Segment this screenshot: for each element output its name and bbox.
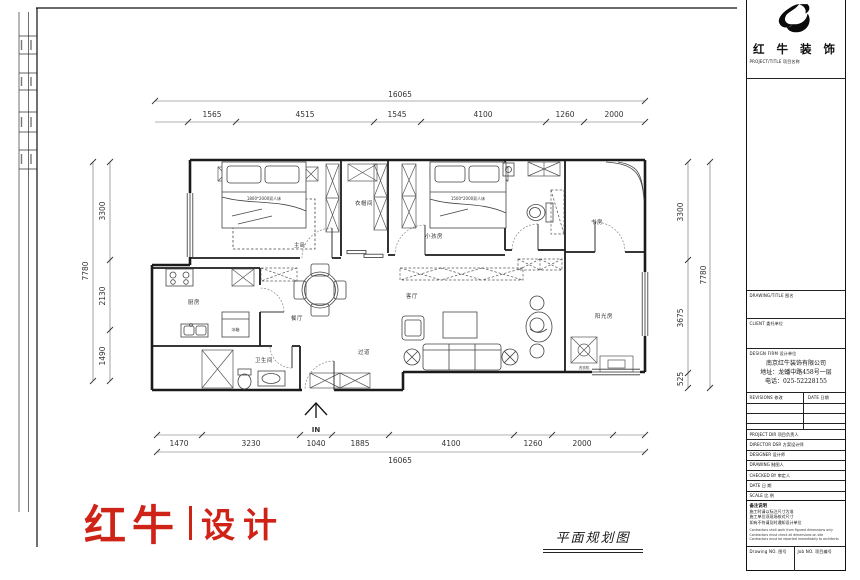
dim-top-2: 4515 bbox=[295, 110, 314, 119]
frame-zone-strip bbox=[19, 12, 37, 512]
row-checked-by: CHECKED BY 审定人 bbox=[747, 471, 845, 481]
dim-top-6: 2000 bbox=[604, 110, 623, 119]
washer-label: 洗衣机 bbox=[579, 365, 590, 370]
dim-bot-7: 2000 bbox=[572, 439, 591, 448]
section-personnel: PROJECT DIR 项目负责人 DIRECTOR DSR 方案设计师 DES… bbox=[747, 429, 845, 501]
notes-title: 备注说明 bbox=[747, 501, 845, 509]
section-revisions: REVISIONS 修改 DATE 日期 bbox=[747, 392, 845, 429]
sheet-title-underline bbox=[543, 549, 643, 550]
dim-right-2: 3675 bbox=[676, 308, 685, 327]
revision-row bbox=[747, 413, 845, 423]
room-label-bath: 卫生间 bbox=[255, 356, 273, 364]
sheet-title: 平面规划图 bbox=[543, 527, 643, 553]
room-label-kitchen: 厨房 bbox=[188, 298, 200, 306]
title-block: 红 牛 装 饰 PROJECT/TITLE 项目名称 DRAWING/TITLE… bbox=[746, 0, 846, 571]
note-en-3: Contractors must be reported immediately… bbox=[747, 537, 845, 541]
field-drawing-no: Drawing NO. 图号 bbox=[747, 547, 794, 555]
field-job-no: Job NO. 项目编号 bbox=[795, 547, 845, 555]
study-corner-desk bbox=[606, 162, 644, 200]
entry-in-label: IN bbox=[312, 426, 321, 434]
living-set bbox=[402, 296, 552, 370]
brand-logo: 红牛 设计 bbox=[84, 492, 285, 553]
dim-right-1: 3300 bbox=[676, 202, 685, 221]
title-block-logo-area: 红 牛 装 饰 PROJECT/TITLE 项目名称 bbox=[747, 0, 845, 79]
job-no-cell: Job NO. 项目编号 bbox=[794, 547, 845, 571]
drawing-sheet: 16065 1565 4515 1545 4100 1260 2000 1470… bbox=[0, 0, 860, 580]
field-drawing-title: DRAWING/TITLE 图名 bbox=[747, 291, 845, 299]
firm-phone: 电话：025-52228155 bbox=[747, 377, 845, 386]
dim-left-2: 2130 bbox=[98, 286, 107, 305]
room-label-hall: 过道 bbox=[358, 348, 370, 356]
revision-row bbox=[747, 403, 845, 413]
brand-logo-divider bbox=[189, 506, 192, 540]
room-label-dining: 餐厅 bbox=[291, 314, 303, 322]
field-design-firm: DESIGN FIRM 设计单位 bbox=[747, 349, 845, 357]
firm-address: 地址：龙蟠中路458号一层 bbox=[747, 368, 845, 377]
firm-name: 南京红牛装饰有限公司 bbox=[747, 359, 845, 368]
room-label-sunroom: 阳光房 bbox=[595, 312, 613, 320]
section-numbers: Drawing NO. 图号 Job NO. 项目编号 bbox=[747, 546, 845, 571]
dim-top-total: 16065 bbox=[388, 90, 412, 99]
dim-top-1: 1565 bbox=[202, 110, 221, 119]
master-bed bbox=[222, 162, 315, 249]
section-drawing-title: DRAWING/TITLE 图名 bbox=[747, 290, 845, 318]
revisions-divider bbox=[803, 393, 804, 429]
entry-arrow-icon bbox=[305, 403, 327, 418]
room-label-closet: 衣帽间 bbox=[355, 199, 373, 207]
field-drawing-by: DRAWING 制图人 bbox=[747, 462, 784, 468]
dim-top-4: 4100 bbox=[473, 110, 492, 119]
dimension-lines bbox=[93, 101, 710, 452]
dim-bot-4: 1885 bbox=[350, 439, 369, 448]
sheet-title-underline2 bbox=[543, 552, 643, 553]
dim-left-3: 1490 bbox=[98, 346, 107, 365]
dim-bot-5: 4100 bbox=[441, 439, 460, 448]
field-client: CLIENT 委托单位 bbox=[747, 319, 845, 327]
field-project-dir: PROJECT DIR 项目负责人 bbox=[747, 432, 799, 438]
dim-bot-1: 1470 bbox=[169, 439, 188, 448]
dim-top-5: 1260 bbox=[555, 110, 574, 119]
bed-label-kids: 1500*2000双人床 bbox=[451, 195, 485, 201]
drawing-no-cell: Drawing NO. 图号 bbox=[747, 547, 794, 571]
dim-right-3: 525 bbox=[676, 372, 685, 387]
sheet-frame bbox=[36, 8, 737, 547]
dim-top-3: 1545 bbox=[387, 110, 406, 119]
section-client: CLIENT 委托单位 bbox=[747, 318, 845, 348]
dim-bot-6: 1260 bbox=[523, 439, 542, 448]
room-label-living: 客厅 bbox=[406, 292, 418, 300]
field-checked-by: CHECKED BY 审定人 bbox=[747, 473, 790, 479]
note-en-1: Contractors shall work from figured dime… bbox=[747, 528, 845, 532]
row-date: DATE 日 期 bbox=[747, 481, 845, 491]
section-notes: 备注说明 施工时请以标注尺寸为准 施工单位须现场核对尺寸 如有不符请及时通知设计… bbox=[747, 500, 845, 546]
bathroom-fixtures bbox=[238, 369, 285, 389]
brand-logo-suffix: 设计 bbox=[201, 498, 285, 547]
dim-left-1: 3300 bbox=[98, 201, 107, 220]
company-logo-text: 红 牛 装 饰 bbox=[747, 41, 845, 57]
bull-logo-icon bbox=[775, 3, 817, 41]
dim-bot-2: 3230 bbox=[241, 439, 260, 448]
dim-right-total: 7780 bbox=[699, 265, 708, 284]
field-revisions: REVISIONS 修改 bbox=[747, 393, 805, 401]
field-project-title: PROJECT/TITLE 项目名称 bbox=[747, 57, 845, 65]
dining-set bbox=[294, 264, 346, 316]
field-designer: DESIGNER 设计师 bbox=[747, 452, 785, 458]
room-label-study: 书房 bbox=[591, 218, 603, 226]
room-label-kids: 小孩房 bbox=[425, 232, 443, 240]
row-designer: DESIGNER 设计师 bbox=[747, 451, 845, 461]
door-leaves bbox=[260, 222, 595, 390]
section-design-firm: DESIGN FIRM 设计单位 南京红牛装饰有限公司 地址：龙蟠中路458号一… bbox=[747, 348, 845, 392]
kids-bed bbox=[430, 162, 506, 228]
row-project-dir: PROJECT DIR 项目负责人 bbox=[747, 430, 845, 440]
row-director: DIRECTOR DSR 方案设计师 bbox=[747, 440, 845, 450]
brand-logo-cn: 红牛 bbox=[84, 492, 180, 553]
dim-bottom-total: 16065 bbox=[388, 456, 412, 465]
dim-bot-3: 1040 bbox=[306, 439, 325, 448]
field-scale: SCALE 比 例 bbox=[747, 493, 774, 499]
fridge-label: 冰箱 bbox=[232, 326, 240, 332]
field-date: DATE 日 期 bbox=[747, 483, 771, 489]
sliding-door bbox=[347, 251, 383, 258]
room-label-master: 主卧 bbox=[294, 241, 306, 249]
door-swing-arcs bbox=[260, 222, 625, 390]
bed-label-master: 1800*2000双人床 bbox=[247, 195, 281, 201]
sheet-title-text: 平面规划图 bbox=[543, 527, 643, 546]
field-director: DIRECTOR DSR 方案设计师 bbox=[747, 442, 804, 448]
field-date-col: DATE 日期 bbox=[805, 393, 845, 401]
dim-left-total: 7780 bbox=[81, 261, 90, 280]
row-drawing-by: DRAWING 制图人 bbox=[747, 461, 845, 471]
